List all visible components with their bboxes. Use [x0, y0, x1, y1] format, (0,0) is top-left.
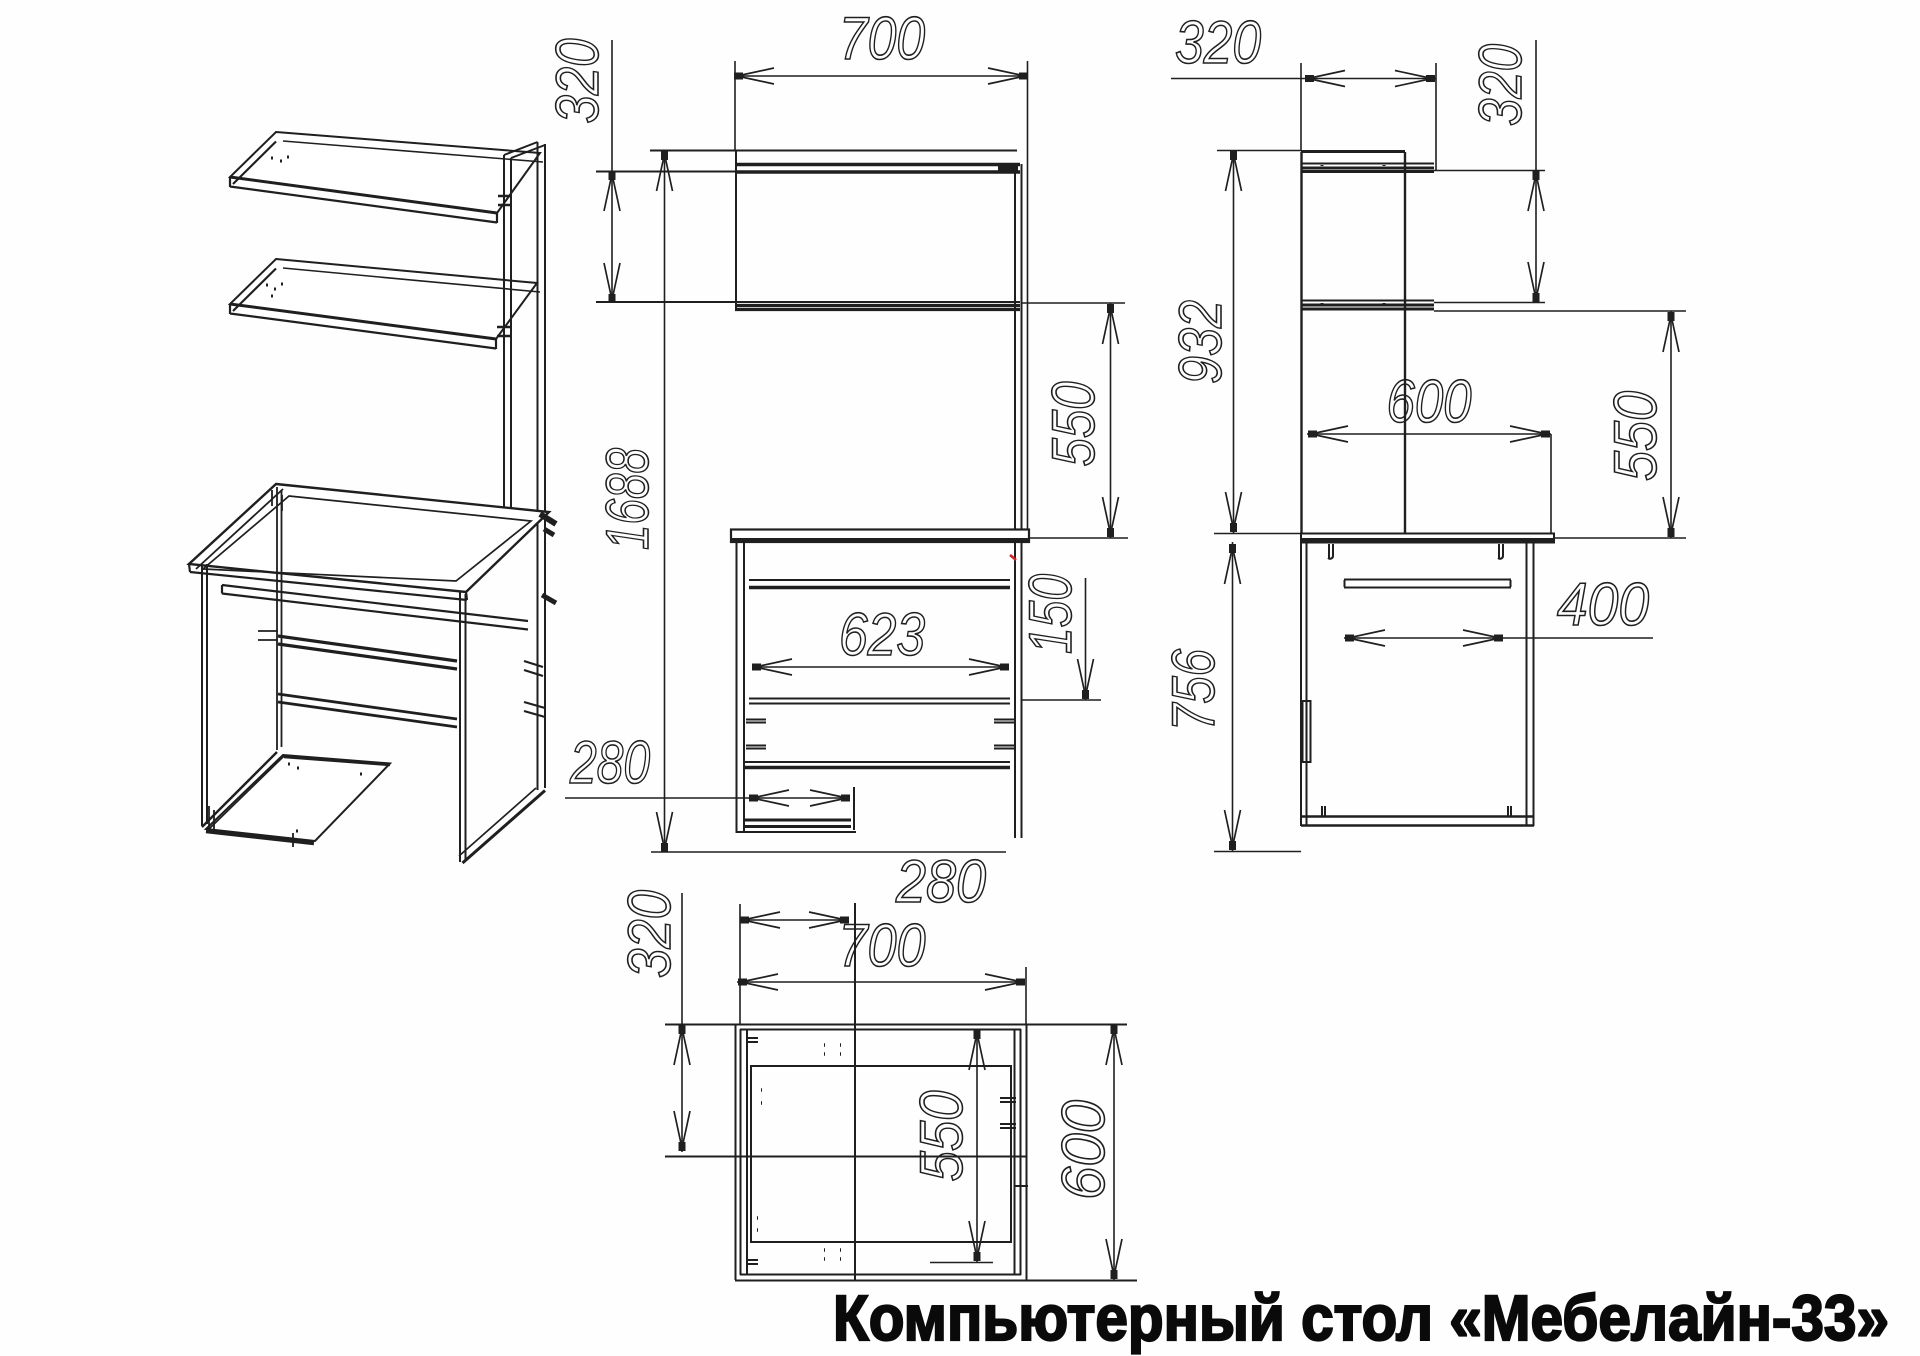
svg-text:320: 320: [1467, 44, 1534, 126]
svg-text:320: 320: [544, 39, 611, 124]
svg-text:550: 550: [1040, 382, 1107, 467]
svg-text:700: 700: [839, 5, 925, 72]
svg-text:400: 400: [1557, 571, 1649, 638]
svg-text:600: 600: [1050, 1100, 1117, 1200]
svg-text:623: 623: [839, 601, 925, 668]
svg-text:280: 280: [569, 729, 650, 796]
svg-text:600: 600: [1387, 368, 1472, 435]
svg-text:550: 550: [1602, 391, 1669, 481]
svg-text:320: 320: [616, 890, 683, 978]
svg-text:Компьютерный стол «Мебелайн-33: Компьютерный стол «Мебелайн-33»: [833, 1282, 1889, 1354]
svg-text:700: 700: [839, 912, 926, 979]
svg-text:320: 320: [1175, 9, 1261, 76]
svg-text:932: 932: [1167, 300, 1234, 384]
svg-text:150: 150: [1017, 574, 1084, 654]
svg-text:756: 756: [1160, 648, 1227, 731]
svg-text:550: 550: [908, 1091, 975, 1182]
svg-text:280: 280: [895, 848, 986, 915]
svg-text:1688: 1688: [594, 448, 661, 550]
